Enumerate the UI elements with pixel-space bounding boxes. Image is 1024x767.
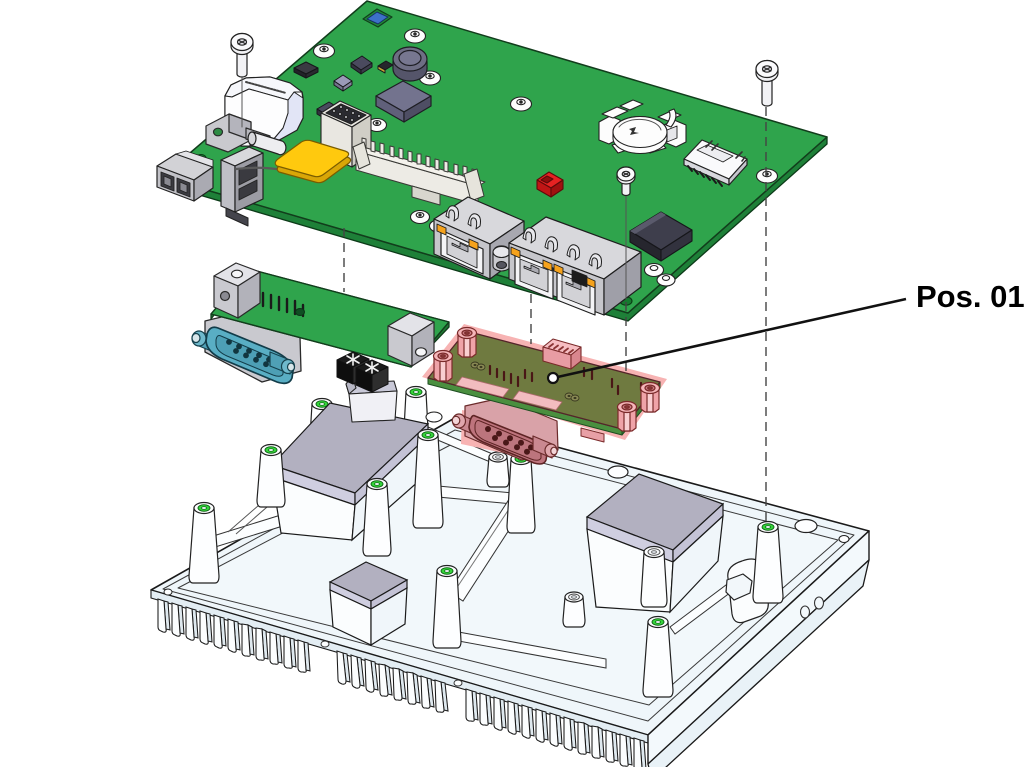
svg-text:Pos. 01: Pos. 01	[916, 279, 1024, 314]
